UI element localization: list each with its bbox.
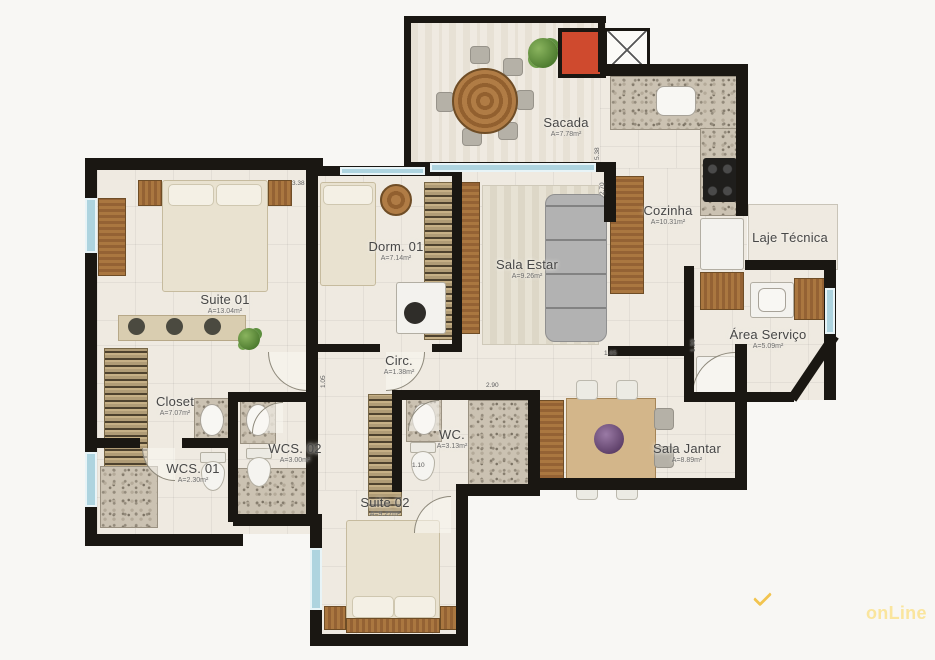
room-label-area-servico: Área Serviço A=5.09m² [730,328,807,350]
room-area: A=10.31m² [643,219,692,226]
kitchen-sink [656,86,696,116]
suite-02-nightstand [324,606,346,630]
wall [318,344,380,352]
room-label-suite-02: Suite 02 A=9.27m² [360,496,409,518]
wall [306,158,318,354]
room-area: A=8.89m² [653,457,721,464]
wall [85,438,140,448]
wall [684,392,794,402]
room-name: Suite 01 [200,293,249,307]
wcs-02-shower [234,468,316,518]
plant-suite-01 [238,328,260,350]
dorm-01-pillow [323,185,373,205]
room-name: Sala Jantar [653,442,721,456]
dimension-label: 2.70 [599,182,606,195]
sacada-chair [470,46,490,64]
room-label-wcs-01: WCS. 01 A=2.30m² [166,462,219,484]
window-wcs-01 [85,452,97,507]
room-area: A=7.07m² [156,410,194,417]
wall [85,534,243,546]
room-name: Dorm. 01 [368,240,423,254]
room-name: Suite 02 [360,496,409,510]
room-area: A=3.00m² [268,457,321,464]
chevron-down-icon [752,592,774,604]
room-label-cozinha: Cozinha A=10.31m² [643,204,692,226]
window-suite-01 [85,198,97,253]
room-name: Área Serviço [730,328,807,342]
dimension-label: 1.05 [320,375,327,388]
wall [684,266,694,400]
sacada-chair [503,58,523,76]
dimension-label: 2.90 [486,382,499,389]
suite-02-pillow [352,596,394,618]
sacada-chair [516,90,534,110]
room-area: A=5.09m² [730,343,807,350]
room-label-wc: WC. A=3.13m² [437,428,468,450]
wall [392,390,402,492]
floorplan-canvas: Sacada A=7.78m² Cozinha A=10.31m² Laje T… [0,0,935,660]
dimension-label: 3.38 [292,180,305,187]
bench-cushion [128,318,145,335]
wall [600,64,748,76]
wall [736,64,748,216]
wall [745,260,836,270]
room-area: A=1.38m² [384,369,415,376]
sacada-round-table [452,68,518,134]
window-suite-02 [310,548,322,610]
sliding-door-sacada [430,163,596,172]
dimension-label: 1.30 [690,339,697,352]
room-label-sala-jantar: Sala Jantar A=8.89m² [653,442,721,464]
room-label-laje-tecnica: Laje Técnica [752,231,828,245]
room-label-sala-estar: Sala Estar A=9.26m² [496,258,558,280]
railing-sacada [598,16,605,72]
room-name: Sacada [543,116,588,130]
cooktop-stove [703,158,737,202]
wall [452,166,462,352]
jantar-chair [616,380,638,400]
wall [608,346,692,356]
room-area: A=9.27m² [360,511,409,518]
dimension-label: 5.38 [594,147,601,160]
room-area: A=7.78m² [543,131,588,138]
wall [228,392,316,402]
wall [228,392,238,522]
room-name: Cozinha [643,204,692,218]
room-area: A=3.13m² [437,443,468,450]
jantar-sideboard [536,400,564,482]
jantar-chair [576,380,598,400]
bench-cushion [204,318,221,335]
room-label-circ: Circ. A=1.38m² [384,354,415,376]
window-dorm-01 [340,167,425,175]
railing-sacada [404,16,606,23]
wall [306,354,318,524]
room-name: WCS. 01 [166,462,219,476]
room-name: Sala Estar [496,258,558,272]
laundry-shelf [794,278,826,320]
dimension-label: 1.65 [604,350,617,357]
wall [310,634,468,646]
suite-02-headboard [346,618,440,633]
jantar-centerpiece [594,424,624,454]
jantar-armchair [654,408,674,430]
room-area: A=2.30m² [166,477,219,484]
wall [182,438,234,448]
room-label-suite-01: Suite 01 A=13.04m² [200,293,249,315]
wcs-01-sink [200,404,224,436]
room-label-wcs-02: WCS. 02 A=3.00m² [268,442,321,464]
room-name: WCS. 02 [268,442,321,456]
suite-01-nightstand [138,180,162,206]
kitchen-base-cabinet [700,272,744,310]
wall [85,158,323,170]
dorm-01-side-table [380,184,412,216]
bench-cushion [166,318,183,335]
room-name: Laje Técnica [752,231,828,245]
wall [532,478,747,490]
laundry-tank-basin [758,288,786,312]
dimension-label: 1.10 [412,462,425,469]
wc-shower [468,400,530,486]
room-area: A=7.14m² [368,255,423,262]
room-name: Circ. [384,354,415,368]
plant-sacada [528,38,558,68]
suite-01-nightstand [268,180,292,206]
dorm-01-desk-chair [404,302,426,324]
room-label-sacada: Sacada A=7.78m² [543,116,588,138]
window-area-servico [825,288,835,334]
suite-01-dresser [98,198,126,276]
room-label-closet: Closet A=7.07m² [156,395,194,417]
fridge [700,218,744,270]
suite-01-pillow [216,184,262,206]
wall [735,344,747,490]
wall [432,344,462,352]
wall [392,390,464,400]
wall [456,492,468,646]
suite-01-pillow [168,184,214,206]
room-name: Closet [156,395,194,409]
room-name: WC. [437,428,468,442]
suite-02-pillow [394,596,436,618]
railing-sacada [404,16,411,170]
wall [528,390,540,490]
room-area: A=9.26m² [496,273,558,280]
room-area: A=13.04m² [200,308,249,315]
wcs-01-shower [100,466,158,528]
room-label-dorm-01: Dorm. 01 A=7.14m² [368,240,423,262]
watermark-brand: onLine [866,603,927,624]
